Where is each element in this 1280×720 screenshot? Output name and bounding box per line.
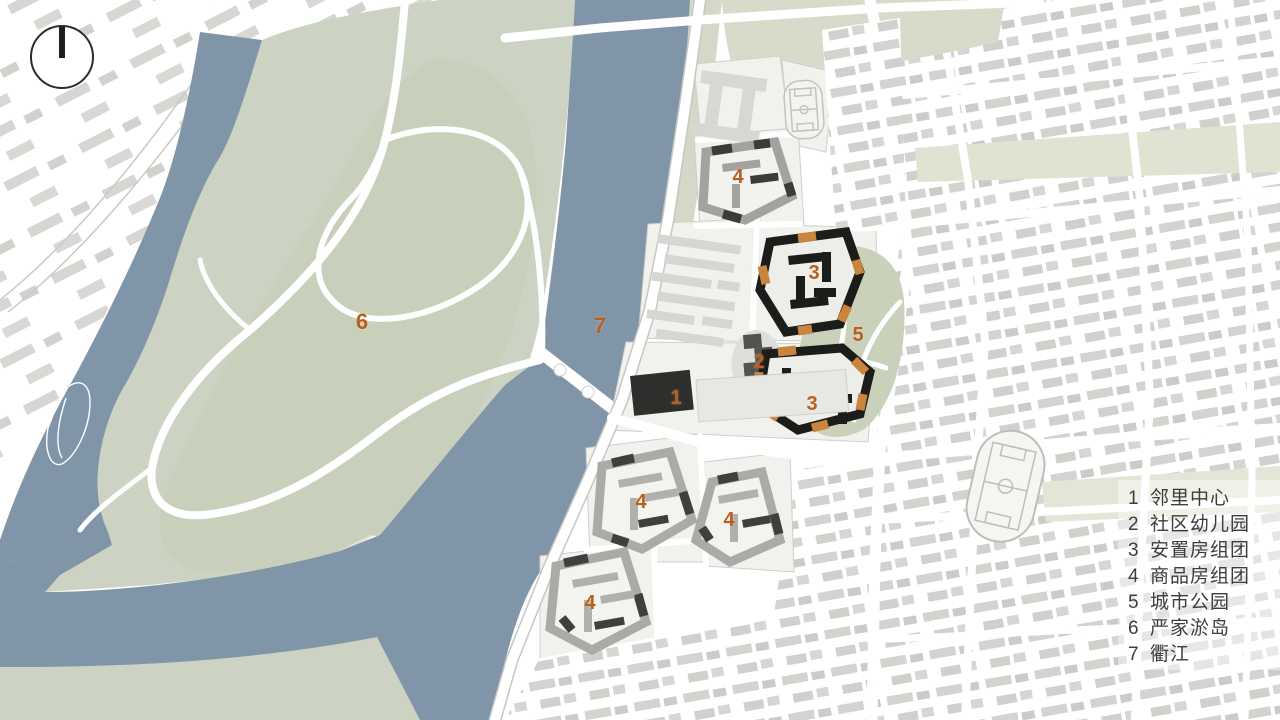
map-marker-4-commercial-center: 4 bbox=[723, 510, 734, 530]
map-marker-1-neighborhood-center: 1 bbox=[670, 388, 681, 408]
sports-field-small bbox=[783, 79, 825, 140]
legend-num: 1 bbox=[1128, 486, 1144, 511]
legend-label: 邻里中心 bbox=[1150, 488, 1230, 509]
legend-item-yanjiayu-island: 6严家淤岛 bbox=[1128, 616, 1278, 641]
map-marker-4-commercial-north: 4 bbox=[732, 167, 743, 187]
legend-num: 7 bbox=[1128, 642, 1144, 667]
legend-label: 城市公园 bbox=[1150, 592, 1230, 613]
masterplan-canvas: 1 2 3 3 4 4 4 4 5 6 7 1邻里中心 2社区幼儿园 3安置房组… bbox=[0, 0, 1280, 720]
map-marker-3-resettlement-north: 3 bbox=[808, 263, 819, 283]
map-marker-6-yanjiayu-island: 6 bbox=[356, 311, 368, 333]
legend-num: 2 bbox=[1128, 512, 1144, 537]
legend-num: 4 bbox=[1128, 564, 1144, 589]
rows-patch-school-east bbox=[822, 18, 906, 232]
legend-item-neighborhood-center: 1邻里中心 bbox=[1128, 486, 1278, 511]
legend-label: 商品房组团 bbox=[1150, 566, 1250, 587]
map-marker-7-qujiang-river: 7 bbox=[594, 315, 606, 337]
legend-label: 社区幼儿园 bbox=[1150, 514, 1250, 535]
legend: 1邻里中心 2社区幼儿园 3安置房组团 4商品房组团 5城市公园 6严家淤岛 7… bbox=[1128, 486, 1278, 668]
legend-item-resettlement-housing: 3安置房组团 bbox=[1128, 538, 1278, 563]
map-marker-5-city-park: 5 bbox=[852, 325, 863, 345]
neighborhood-center bbox=[630, 370, 694, 416]
legend-label: 严家淤岛 bbox=[1150, 618, 1230, 639]
legend-item-qujiang-river: 7衢江 bbox=[1128, 642, 1278, 667]
legend-item-city-park: 5城市公园 bbox=[1128, 590, 1278, 615]
legend-item-kindergarten: 2社区幼儿园 bbox=[1128, 512, 1278, 537]
block4-southcenter bbox=[696, 472, 780, 562]
legend-label: 安置房组团 bbox=[1150, 540, 1250, 561]
legend-label: 衢江 bbox=[1150, 644, 1190, 665]
masterplan-map bbox=[0, 0, 1280, 720]
compass-north-icon bbox=[31, 26, 93, 88]
map-marker-4-commercial-south: 4 bbox=[584, 593, 595, 613]
map-marker-4-commercial-west: 4 bbox=[635, 492, 646, 512]
map-marker-2-kindergarten: 2 bbox=[753, 352, 764, 372]
legend-item-commercial-housing: 4商品房组团 bbox=[1128, 564, 1278, 589]
legend-num: 5 bbox=[1128, 590, 1144, 615]
map-marker-3-resettlement-south: 3 bbox=[806, 394, 817, 414]
legend-num: 6 bbox=[1128, 616, 1144, 641]
legend-num: 3 bbox=[1128, 538, 1144, 563]
